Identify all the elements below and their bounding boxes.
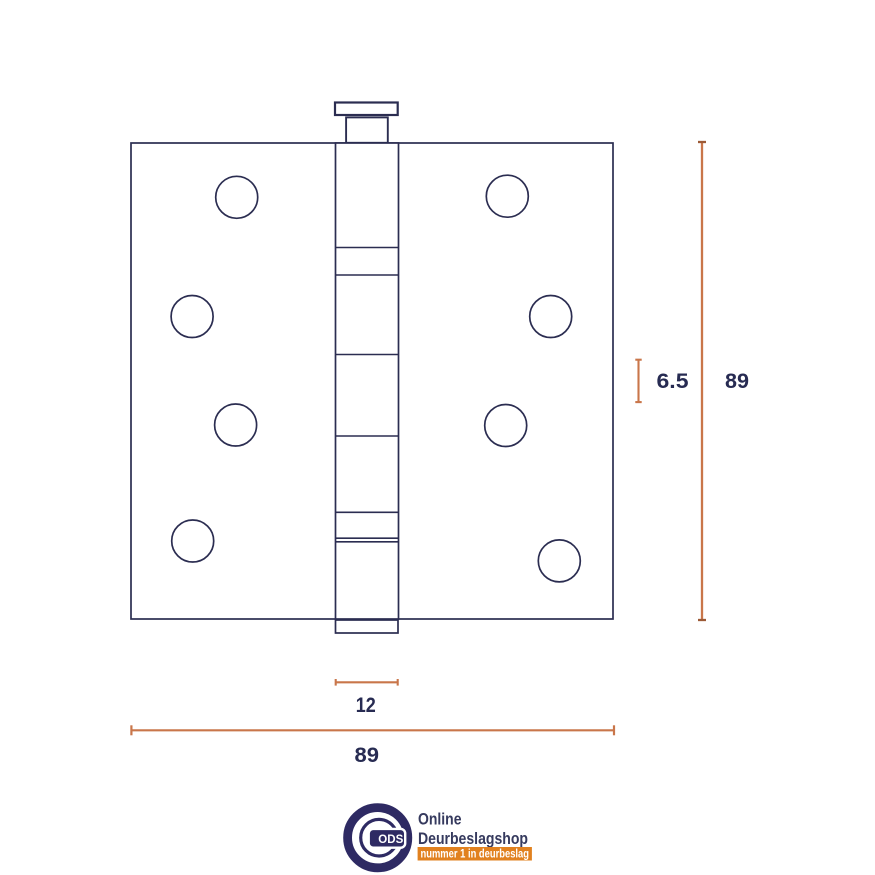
svg-text:89: 89 bbox=[725, 370, 749, 393]
svg-text:nummer 1 in deurbeslag: nummer 1 in deurbeslag bbox=[421, 849, 530, 861]
svg-text:12: 12 bbox=[356, 694, 376, 717]
svg-text:6.5: 6.5 bbox=[657, 370, 689, 393]
svg-text:ODS: ODS bbox=[378, 834, 403, 846]
svg-text:89: 89 bbox=[355, 744, 380, 767]
svg-text:Online: Online bbox=[418, 811, 462, 829]
svg-text:Deurbeslagshop: Deurbeslagshop bbox=[418, 830, 528, 848]
